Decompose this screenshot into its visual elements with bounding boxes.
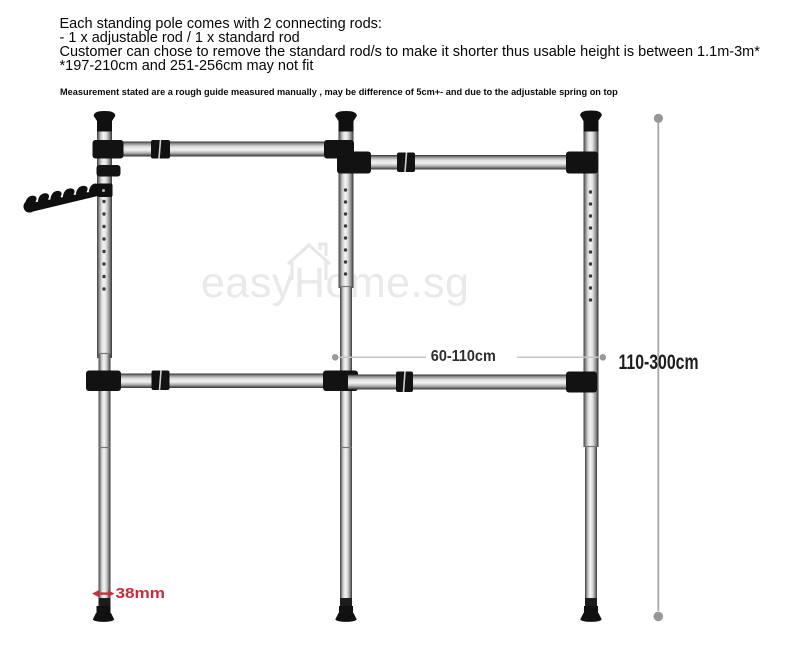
- svg-text:38mm: 38mm: [116, 586, 166, 602]
- svg-text:60-110cm: 60-110cm: [431, 348, 496, 365]
- svg-text:easyHome.sg: easyHome.sg: [201, 259, 469, 307]
- svg-text:110-300cm: 110-300cm: [619, 350, 699, 374]
